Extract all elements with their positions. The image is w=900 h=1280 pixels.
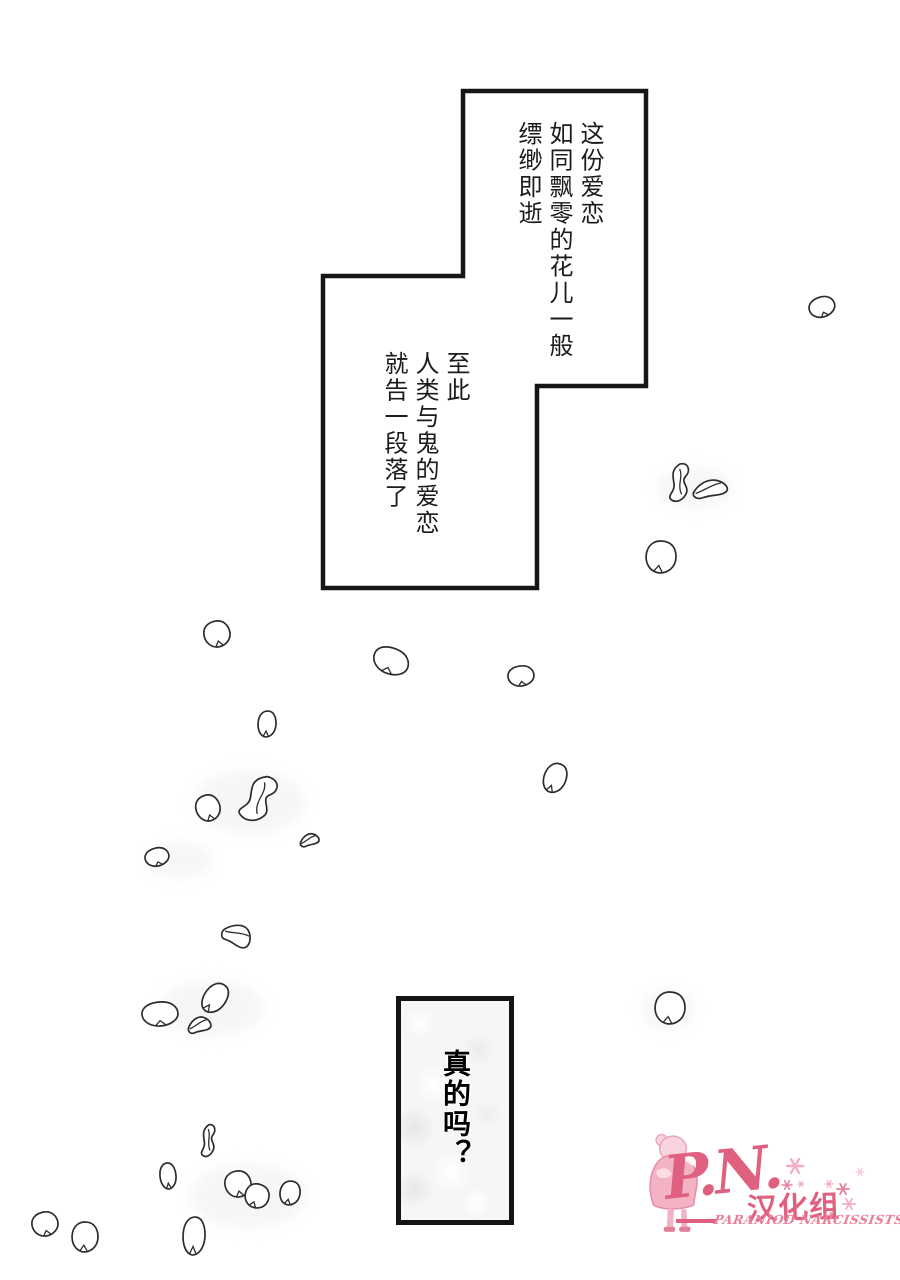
narration-line: 缥缈即逝 [512, 121, 543, 360]
sakura-petal [299, 833, 320, 848]
scanlation-logo: P.N. 汉化组 PARANIOD NARCISSISTS [640, 1128, 890, 1258]
manga-page: 这份爱恋 如同飘零的花儿一般 缥缈即逝 至此 人类与鬼的爱恋 就告一段落了 真的… [0, 0, 900, 1280]
narration-line: 人类与鬼的爱恋 [409, 351, 440, 537]
narration-line: 至此 [440, 351, 471, 537]
narration-line: 就告一段落了 [378, 351, 409, 537]
speech-box: 真的吗？ [396, 996, 514, 1225]
sakura-petal [643, 538, 679, 576]
sakura-petal [71, 1221, 100, 1254]
narration-top: 这份爱恋 如同飘零的花儿一般 缥缈即逝 [512, 121, 605, 360]
sakura-petal [539, 760, 571, 796]
sakura-petal [807, 293, 838, 320]
sakura-petal [201, 1124, 216, 1157]
logo-subtitle: PARANIOD NARCISSISTS [713, 1212, 900, 1227]
sakura-petal [182, 1216, 207, 1255]
sakura-petal [507, 664, 536, 687]
sakura-petal [219, 918, 255, 953]
sakura-petal [159, 1162, 177, 1189]
sakura-petal [30, 1210, 60, 1239]
sakura-petal [369, 642, 412, 680]
sakura-petal [202, 619, 233, 650]
narration-line: 这份爱恋 [574, 121, 605, 360]
sakura-petal [257, 710, 278, 738]
logo-underline [676, 1219, 716, 1223]
narration-line: 如同飘零的花儿一般 [543, 121, 574, 360]
narration-bottom: 至此 人类与鬼的爱恋 就告一段落了 [378, 351, 471, 537]
speech-text: 真的吗？ [435, 1049, 475, 1169]
